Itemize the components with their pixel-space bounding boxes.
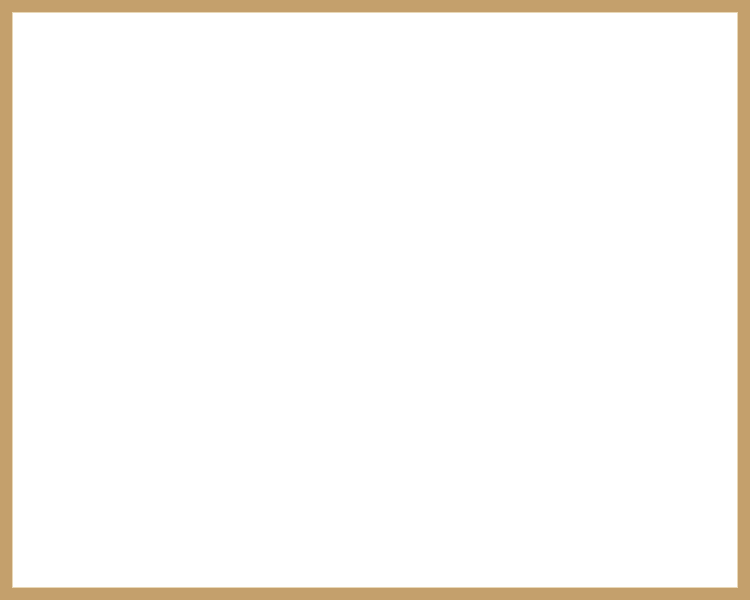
decorative-frame [0,0,750,600]
